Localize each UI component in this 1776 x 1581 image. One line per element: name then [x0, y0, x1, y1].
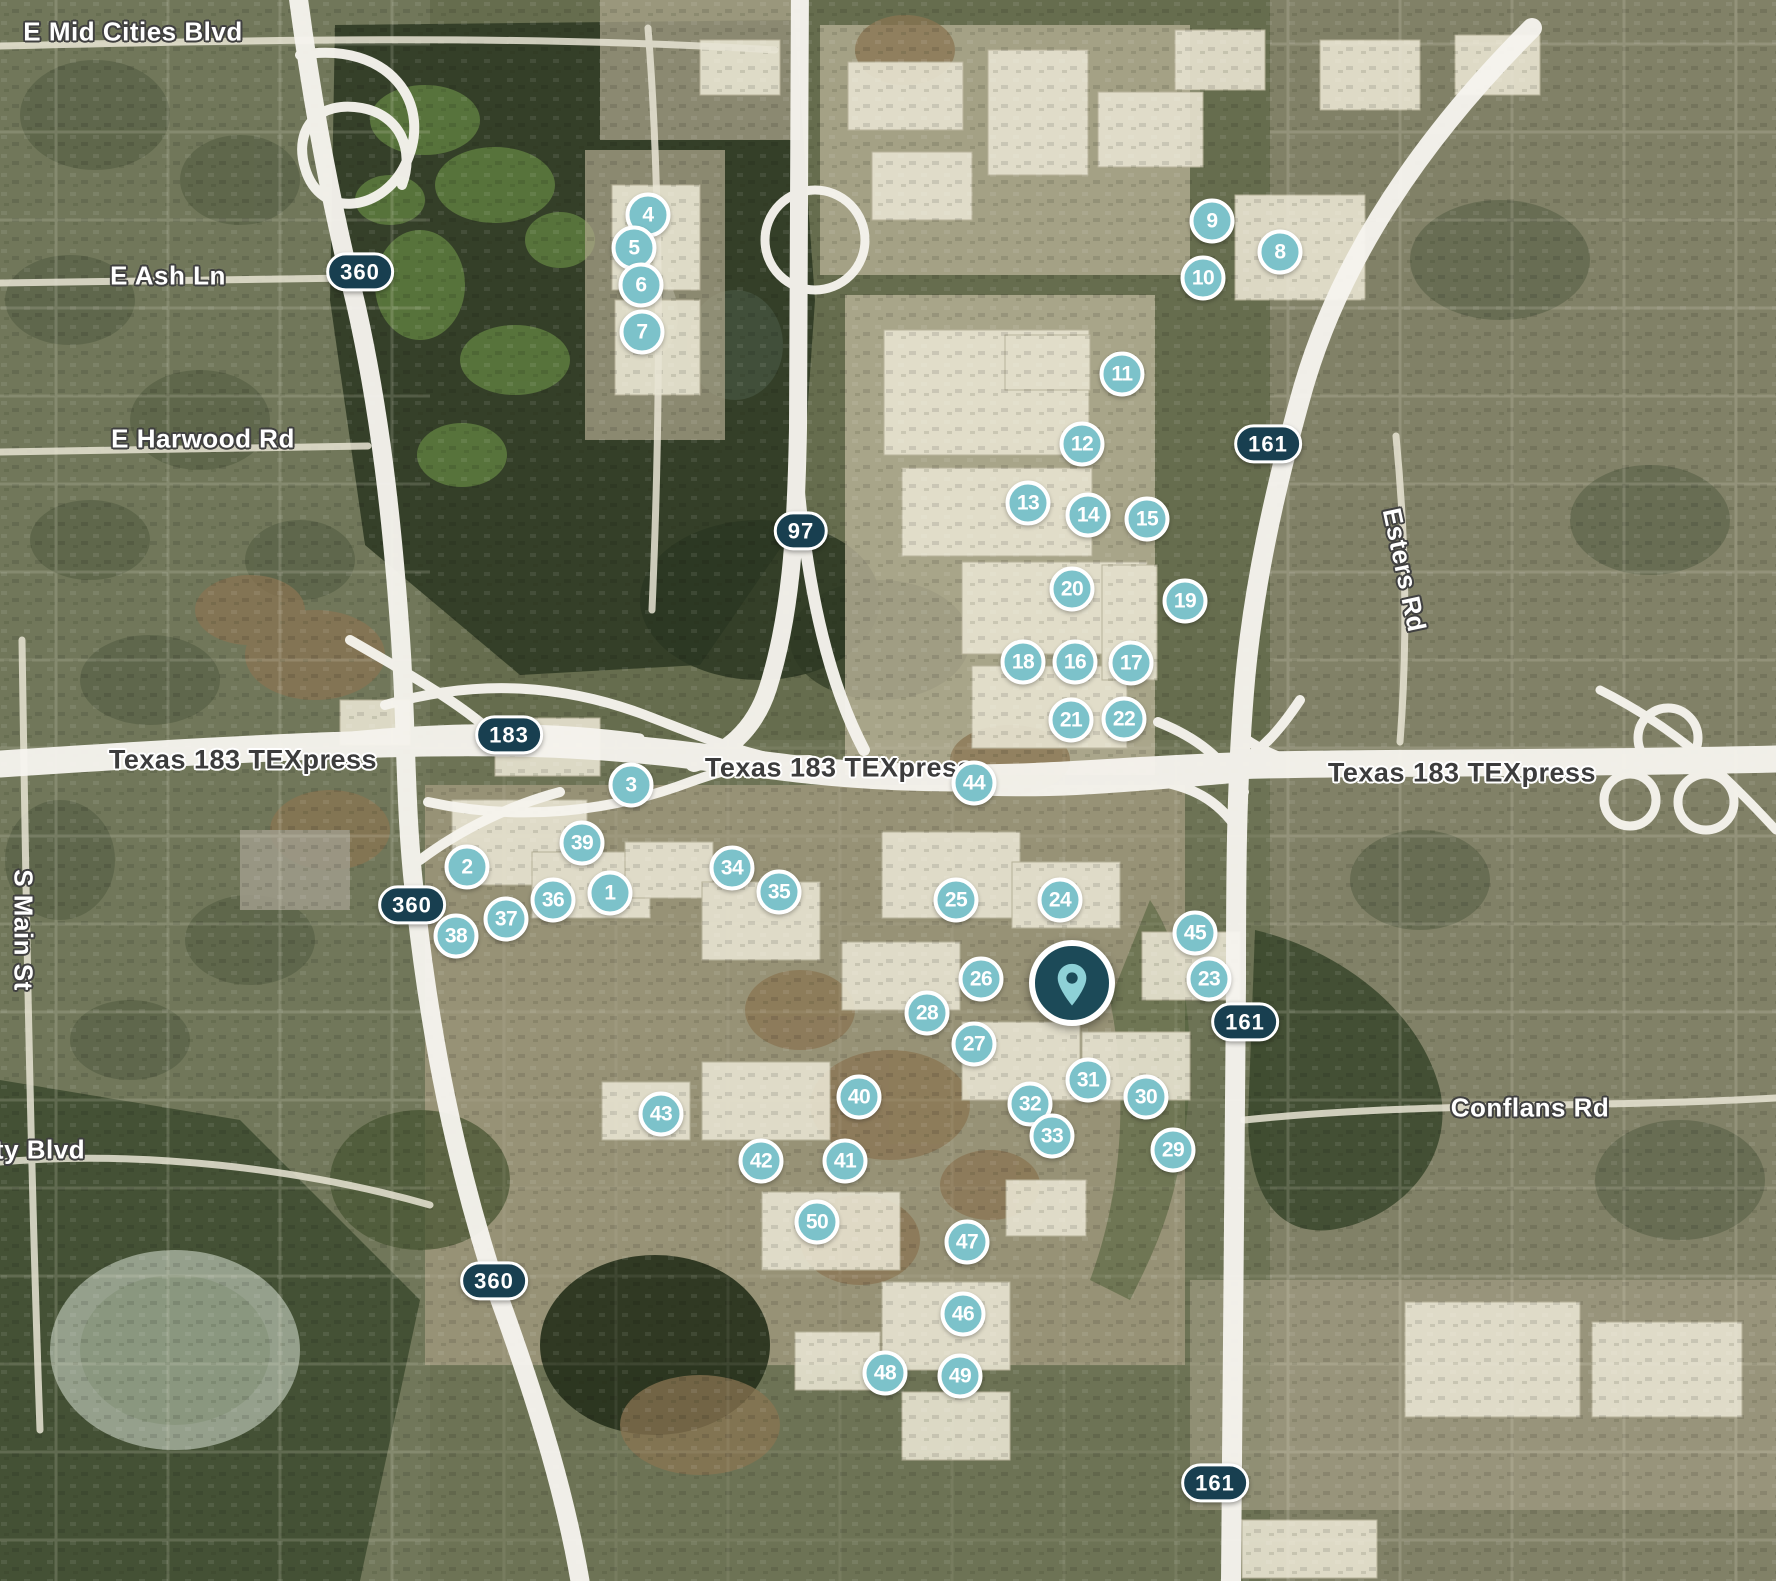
map-marker[interactable]: 1 [588, 871, 633, 916]
map-marker[interactable]: 13 [1006, 481, 1051, 526]
map-marker[interactable]: 9 [1190, 199, 1235, 244]
map-marker[interactable]: 15 [1125, 497, 1170, 542]
satellite-map[interactable]: E Mid Cities BlvdE Ash LnE Harwood RdS M… [0, 0, 1776, 1581]
texpress-label: Texas 183 TEXpress [1328, 758, 1596, 789]
highway-shield: 360 [378, 885, 446, 924]
highway-shield: 360 [326, 252, 394, 291]
map-overlays: E Mid Cities BlvdE Ash LnE Harwood RdS M… [0, 0, 1776, 1581]
map-marker[interactable]: 11 [1100, 352, 1145, 397]
map-marker[interactable]: 44 [952, 761, 997, 806]
map-marker[interactable]: 50 [795, 1200, 840, 1245]
map-marker[interactable]: 37 [484, 897, 529, 942]
map-marker[interactable]: 28 [905, 991, 950, 1036]
map-marker[interactable]: 31 [1066, 1058, 1111, 1103]
map-marker[interactable]: 26 [959, 957, 1004, 1002]
road-label: Esters Rd [1376, 505, 1432, 635]
map-pin-icon [1050, 960, 1094, 1010]
map-marker[interactable]: 17 [1109, 641, 1154, 686]
map-marker[interactable]: 49 [938, 1354, 983, 1399]
road-label: E Ash Ln [110, 261, 226, 292]
map-marker[interactable]: 6 [619, 263, 664, 308]
map-marker[interactable]: 45 [1173, 911, 1218, 956]
map-marker[interactable]: 10 [1181, 256, 1226, 301]
map-marker[interactable]: 46 [941, 1292, 986, 1337]
map-marker[interactable]: 2 [445, 845, 490, 890]
map-marker[interactable]: 47 [945, 1220, 990, 1265]
map-marker[interactable]: 29 [1151, 1128, 1196, 1173]
map-marker[interactable]: 41 [823, 1139, 868, 1184]
map-marker[interactable]: 25 [934, 878, 979, 923]
texpress-label: Texas 183 TEXpress [109, 745, 377, 776]
texpress-label: Texas 183 TEXpress [705, 753, 973, 784]
highway-shield: 161 [1211, 1002, 1279, 1041]
map-marker[interactable]: 43 [639, 1092, 684, 1137]
map-marker[interactable]: 36 [531, 878, 576, 923]
map-marker[interactable]: 40 [837, 1075, 882, 1120]
road-label: S Main St [8, 869, 39, 991]
map-marker[interactable]: 35 [757, 870, 802, 915]
map-marker[interactable]: 3 [609, 763, 654, 808]
highway-shield: 161 [1234, 424, 1302, 463]
map-marker[interactable]: 14 [1066, 493, 1111, 538]
highway-shield: 360 [460, 1261, 528, 1300]
map-marker[interactable]: 20 [1050, 567, 1095, 612]
map-marker[interactable]: 16 [1053, 640, 1098, 685]
highway-shield: 161 [1181, 1463, 1249, 1502]
road-label: E Mid Cities Blvd [23, 17, 242, 48]
highway-shield: 183 [475, 715, 543, 754]
map-marker[interactable]: 39 [560, 821, 605, 866]
map-marker[interactable]: 30 [1124, 1075, 1169, 1120]
map-marker[interactable]: 27 [952, 1022, 997, 1067]
map-marker[interactable]: 12 [1060, 422, 1105, 467]
road-label: Conflans Rd [1451, 1093, 1610, 1124]
highway-shield: 97 [774, 511, 828, 550]
map-marker[interactable]: 34 [710, 846, 755, 891]
location-pin[interactable] [1029, 940, 1115, 1026]
map-marker[interactable]: 21 [1049, 698, 1094, 743]
map-marker[interactable]: 18 [1001, 640, 1046, 685]
road-label: ty Blvd [0, 1135, 85, 1166]
map-marker[interactable]: 38 [434, 914, 479, 959]
map-marker[interactable]: 19 [1163, 579, 1208, 624]
map-marker[interactable]: 42 [739, 1139, 784, 1184]
map-marker[interactable]: 33 [1030, 1114, 1075, 1159]
map-marker[interactable]: 7 [620, 310, 665, 355]
map-marker[interactable]: 8 [1258, 230, 1303, 275]
map-marker[interactable]: 48 [863, 1351, 908, 1396]
map-marker[interactable]: 23 [1187, 957, 1232, 1002]
road-label: E Harwood Rd [111, 424, 295, 455]
map-marker[interactable]: 24 [1038, 878, 1083, 923]
map-marker[interactable]: 22 [1102, 697, 1147, 742]
